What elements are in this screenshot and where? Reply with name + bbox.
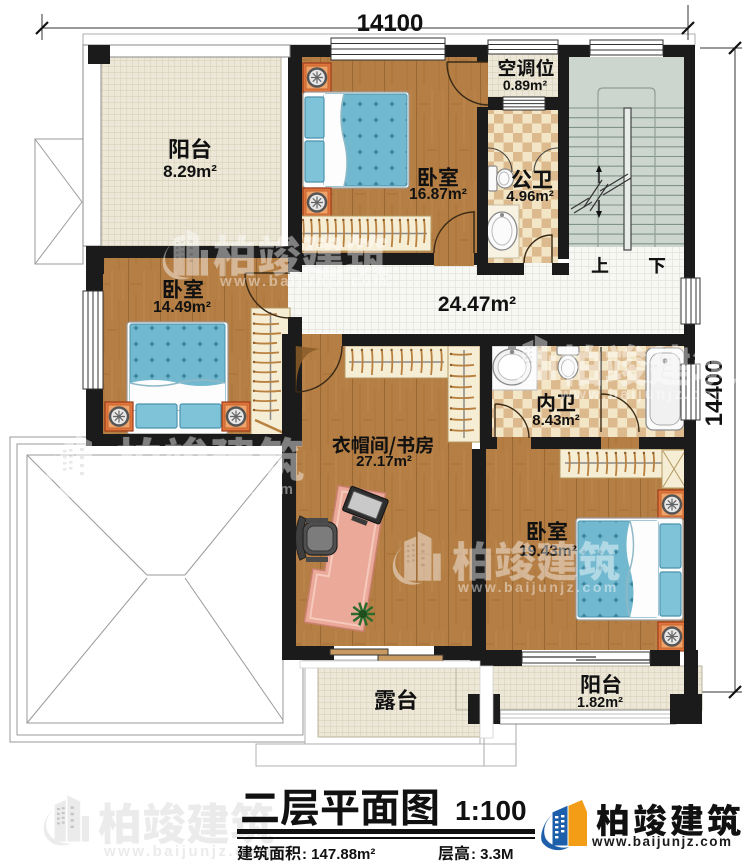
- svg-text:8.43m²: 8.43m²: [532, 412, 580, 429]
- svg-text:1:100: 1:100: [455, 795, 527, 826]
- svg-text:: 3.3M: : 3.3M: [471, 846, 514, 863]
- svg-text:14100: 14100: [357, 10, 424, 37]
- svg-text:4.96m²: 4.96m²: [506, 188, 554, 205]
- svg-text:www.baijunjz.com: www.baijunjz.com: [219, 273, 389, 290]
- svg-text:8.29m²: 8.29m²: [163, 162, 217, 181]
- svg-text:www.baijunjz.com: www.baijunjz.com: [559, 386, 729, 403]
- svg-text:16.87m²: 16.87m²: [409, 186, 467, 203]
- svg-text:24.47m²: 24.47m²: [438, 293, 516, 316]
- svg-text:27.17m²: 27.17m²: [356, 453, 412, 470]
- svg-text:: 147.88m²: : 147.88m²: [302, 846, 375, 863]
- svg-text:0.89m²: 0.89m²: [503, 77, 548, 93]
- svg-text:14.49m²: 14.49m²: [153, 299, 211, 316]
- svg-text:www.baijunjz.com: www.baijunjz.com: [457, 579, 619, 595]
- svg-text:www.baijunjz.com: www.baijunjz.com: [125, 481, 295, 498]
- svg-text:www.baijunjz.com: www.baijunjz.com: [591, 834, 733, 849]
- svg-text:1.82m²: 1.82m²: [577, 695, 623, 711]
